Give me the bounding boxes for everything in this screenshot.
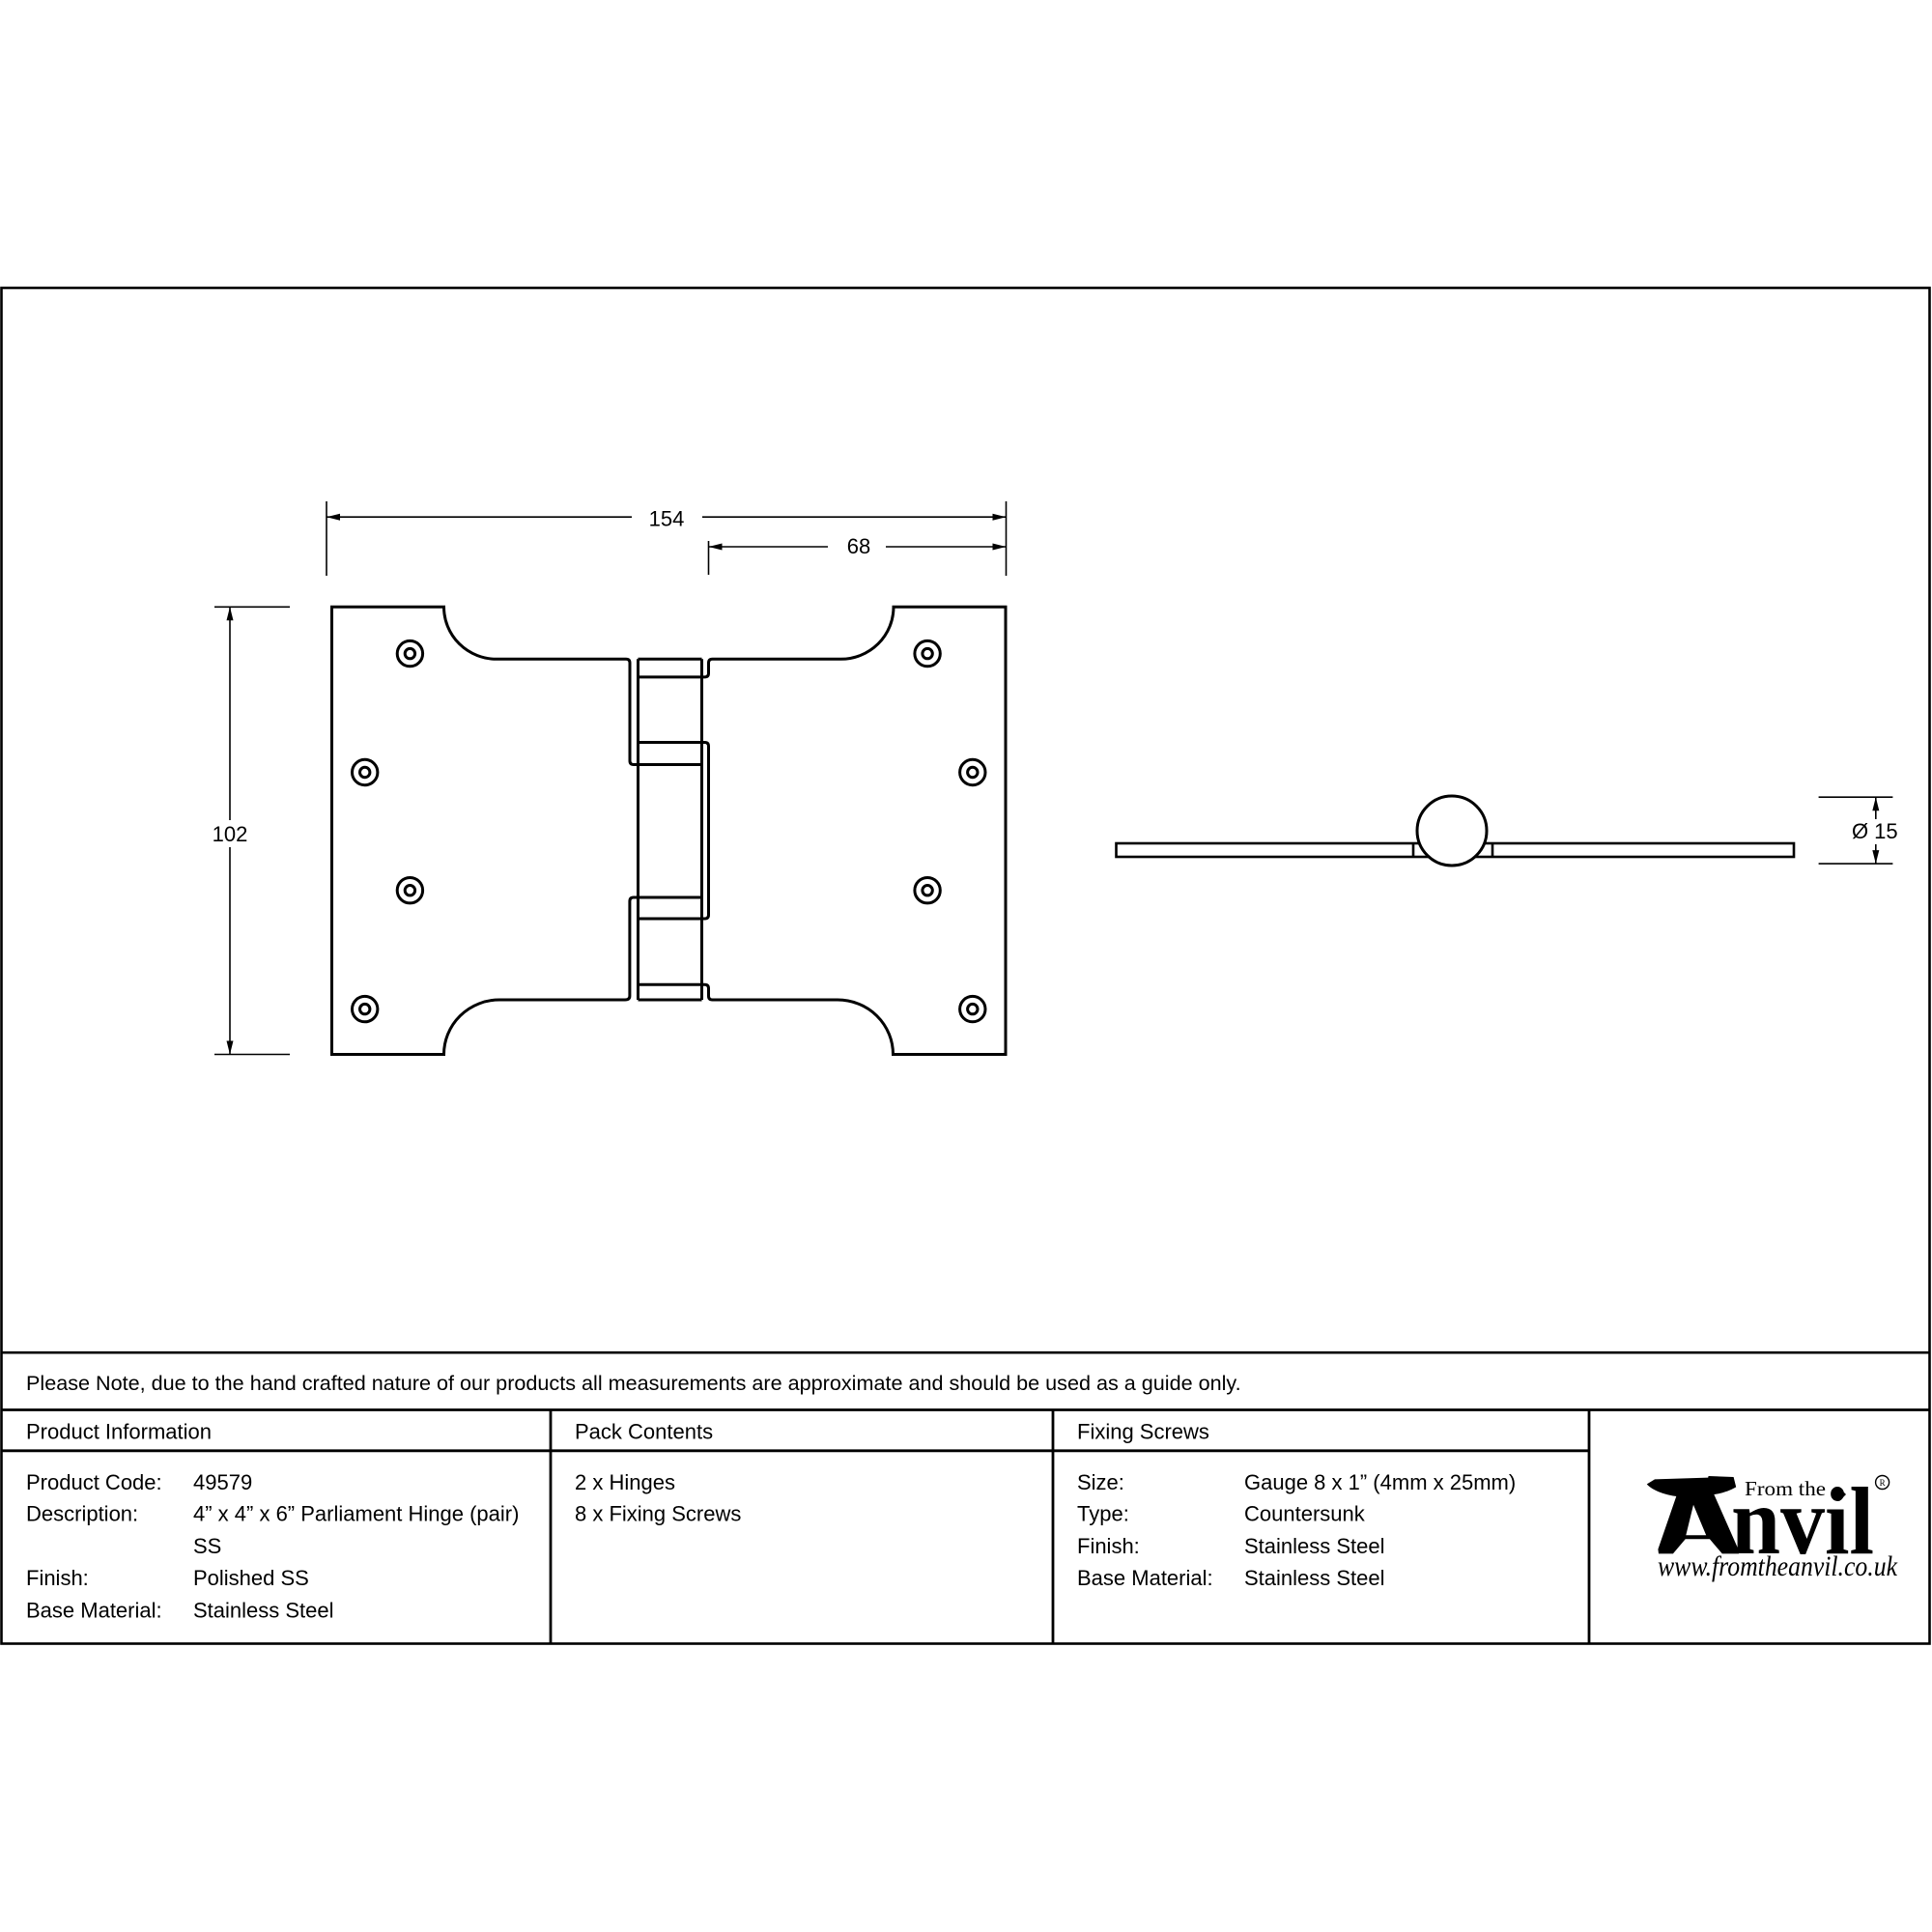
svg-text:Product Information: Product Information [26, 1420, 212, 1444]
svg-text:Description:: Description: [26, 1502, 138, 1526]
svg-text:Ø 15: Ø 15 [1852, 819, 1898, 843]
svg-text:Base Material:: Base Material: [1077, 1566, 1213, 1590]
svg-text:Stainless Steel: Stainless Steel [1244, 1534, 1385, 1558]
svg-text:68: 68 [847, 534, 870, 558]
svg-text:4” x 4” x 6” Parliament Hinge: 4” x 4” x 6” Parliament Hinge (pair) [193, 1502, 519, 1526]
svg-text:154: 154 [649, 507, 685, 531]
svg-text:SS: SS [193, 1534, 221, 1558]
svg-text:Stainless Steel: Stainless Steel [1244, 1566, 1385, 1590]
svg-text:Countersunk: Countersunk [1244, 1502, 1366, 1526]
svg-text:R: R [1880, 1478, 1886, 1488]
svg-text:Gauge 8 x 1” (4mm x 25mm): Gauge 8 x 1” (4mm x 25mm) [1244, 1470, 1516, 1494]
svg-text:Fixing Screws: Fixing Screws [1077, 1420, 1209, 1444]
svg-text:Stainless Steel: Stainless Steel [193, 1599, 334, 1623]
svg-text:Polished SS: Polished SS [193, 1566, 309, 1590]
svg-text:Pack Contents: Pack Contents [575, 1420, 713, 1444]
svg-text:102: 102 [213, 822, 248, 846]
svg-text:Please Note, due to the hand c: Please Note, due to the hand crafted nat… [26, 1371, 1241, 1395]
svg-text:www.fromtheanvil.co.uk: www.fromtheanvil.co.uk [1658, 1550, 1898, 1582]
svg-text:2 x Hinges: 2 x Hinges [575, 1470, 675, 1494]
svg-text:Type:: Type: [1077, 1502, 1129, 1526]
svg-text:Finish:: Finish: [26, 1566, 89, 1590]
svg-text:Finish:: Finish: [1077, 1534, 1140, 1558]
svg-text:Base Material:: Base Material: [26, 1599, 162, 1623]
svg-text:8 x Fixing Screws: 8 x Fixing Screws [575, 1502, 741, 1526]
svg-text:Product Code:: Product Code: [26, 1470, 162, 1494]
svg-text:Size:: Size: [1077, 1470, 1124, 1494]
svg-text:49579: 49579 [193, 1470, 252, 1494]
